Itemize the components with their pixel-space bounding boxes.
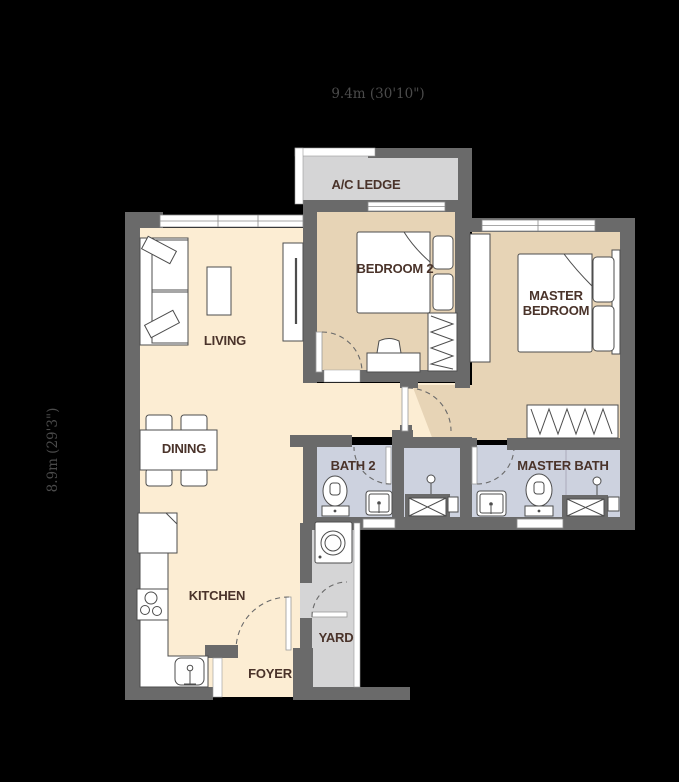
chair-icon (146, 415, 172, 432)
shower-faucet-icon (427, 475, 435, 483)
master-bath-door (472, 447, 477, 484)
yard-fixtures (315, 522, 352, 563)
yard-open-edge (354, 523, 360, 687)
pillow-icon (433, 236, 453, 269)
dining-label: DINING (162, 441, 206, 456)
desk-icon (367, 353, 420, 372)
cabinet-icon (470, 234, 490, 362)
master-bedroom-door (402, 387, 408, 431)
master-bedroom-label-line1: MASTER (529, 288, 584, 303)
desk-chair-icon (377, 339, 401, 354)
master-bath-window (517, 519, 563, 528)
yard-label: YARD (319, 630, 354, 645)
bedroom2-door (316, 332, 322, 372)
foyer-label: FOYER (248, 666, 293, 681)
pillow-icon (433, 274, 453, 310)
pillow-icon (593, 306, 614, 351)
chair-icon (146, 469, 172, 486)
foyer-threshold (213, 658, 222, 697)
master-bath-label: MASTER BATH (517, 458, 608, 473)
shower-faucet-icon (593, 477, 601, 485)
width-dimension-label: 9.4m (30'10") (331, 86, 424, 102)
kitchen-label: KITCHEN (189, 588, 245, 603)
chair-icon (181, 415, 207, 432)
floorplan-canvas: A/C LEDGE BEDROOM 2 MASTER BEDROOM LIVIN… (0, 0, 679, 782)
yard-door (312, 612, 347, 617)
master-bedroom-label-line2: BEDROOM (523, 303, 590, 318)
living-label: LIVING (204, 333, 246, 348)
tv-console-icon (283, 243, 303, 341)
entry-door (286, 597, 291, 650)
bath2-label: BATH 2 (331, 458, 376, 473)
pillow-icon (593, 257, 614, 302)
bedroom2-label: BEDROOM 2 (357, 261, 434, 276)
wardrobe-icon (428, 313, 457, 371)
fridge-icon (138, 513, 177, 553)
ac-ledge-label: A/C LEDGE (332, 177, 402, 192)
coffee-table-icon (207, 267, 231, 315)
floorplan-svg: A/C LEDGE BEDROOM 2 MASTER BEDROOM LIVIN… (0, 0, 679, 782)
bath2-window (363, 519, 395, 528)
height-dimension-label: 8.9m (29'3") (45, 408, 61, 493)
chair-icon (181, 469, 207, 486)
ac-ledge-open-edge (295, 148, 375, 156)
bath2-door (386, 447, 391, 484)
